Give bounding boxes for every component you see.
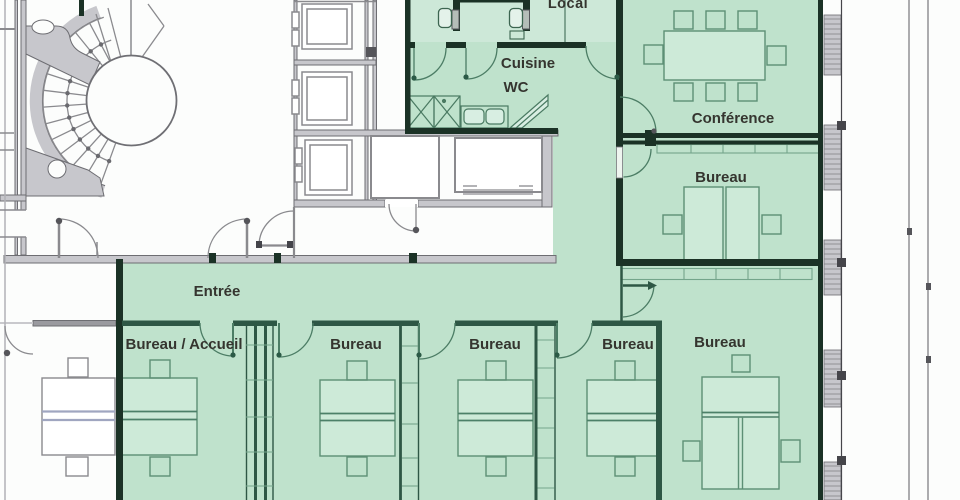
svg-text:WC: WC bbox=[504, 79, 529, 96]
svg-text:Cuisine: Cuisine bbox=[501, 55, 555, 72]
svg-text:Bureau: Bureau bbox=[695, 169, 747, 186]
svg-text:Local: Local bbox=[548, 0, 588, 12]
svg-text:Bureau: Bureau bbox=[694, 334, 746, 351]
svg-text:Conférence: Conférence bbox=[692, 110, 775, 127]
svg-text:Bureau / Accueil: Bureau / Accueil bbox=[126, 336, 243, 353]
svg-text:Entrée: Entrée bbox=[194, 283, 241, 300]
svg-text:Bureau: Bureau bbox=[469, 336, 521, 353]
svg-text:Bureau: Bureau bbox=[602, 336, 654, 353]
svg-text:Bureau: Bureau bbox=[330, 336, 382, 353]
